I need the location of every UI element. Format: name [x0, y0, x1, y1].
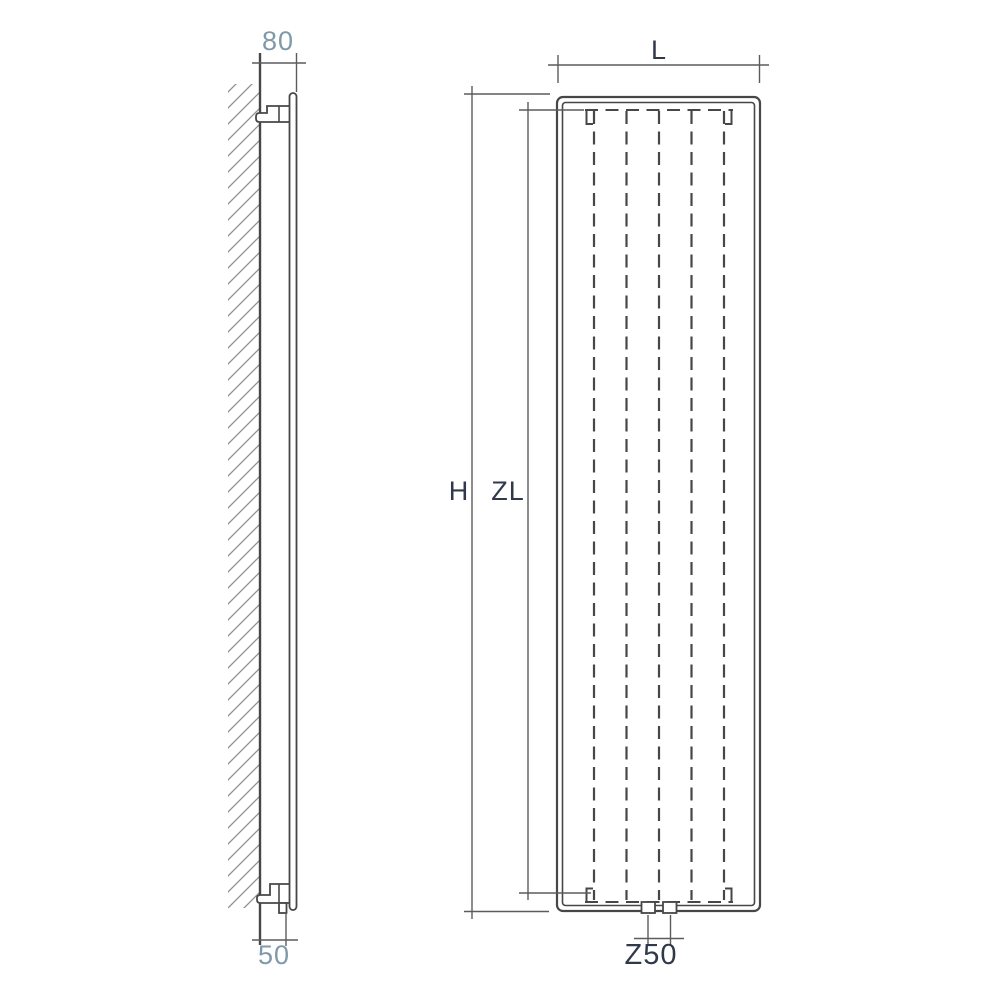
radiator-technical-drawing: 80 50 L H ZL Z50	[0, 0, 1000, 1000]
port-right	[663, 902, 677, 913]
height-dimension-label: H	[449, 478, 470, 505]
side-panel	[290, 93, 297, 910]
bottom-pipe-stub	[279, 903, 287, 913]
width-dimension-label: L	[651, 37, 667, 64]
side-view	[228, 53, 306, 946]
connection-spacing-dimension-label: Z50	[625, 941, 678, 970]
port-left	[642, 902, 656, 913]
wall-hatch	[228, 84, 260, 908]
bottom-mount-bracket	[257, 884, 291, 903]
top-mount-bracket	[256, 106, 291, 122]
bottom-offset-dimension-label: 50	[258, 942, 290, 969]
depth-dimension-label: 80	[262, 28, 294, 55]
inner-length-dimension-label: ZL	[491, 478, 525, 505]
